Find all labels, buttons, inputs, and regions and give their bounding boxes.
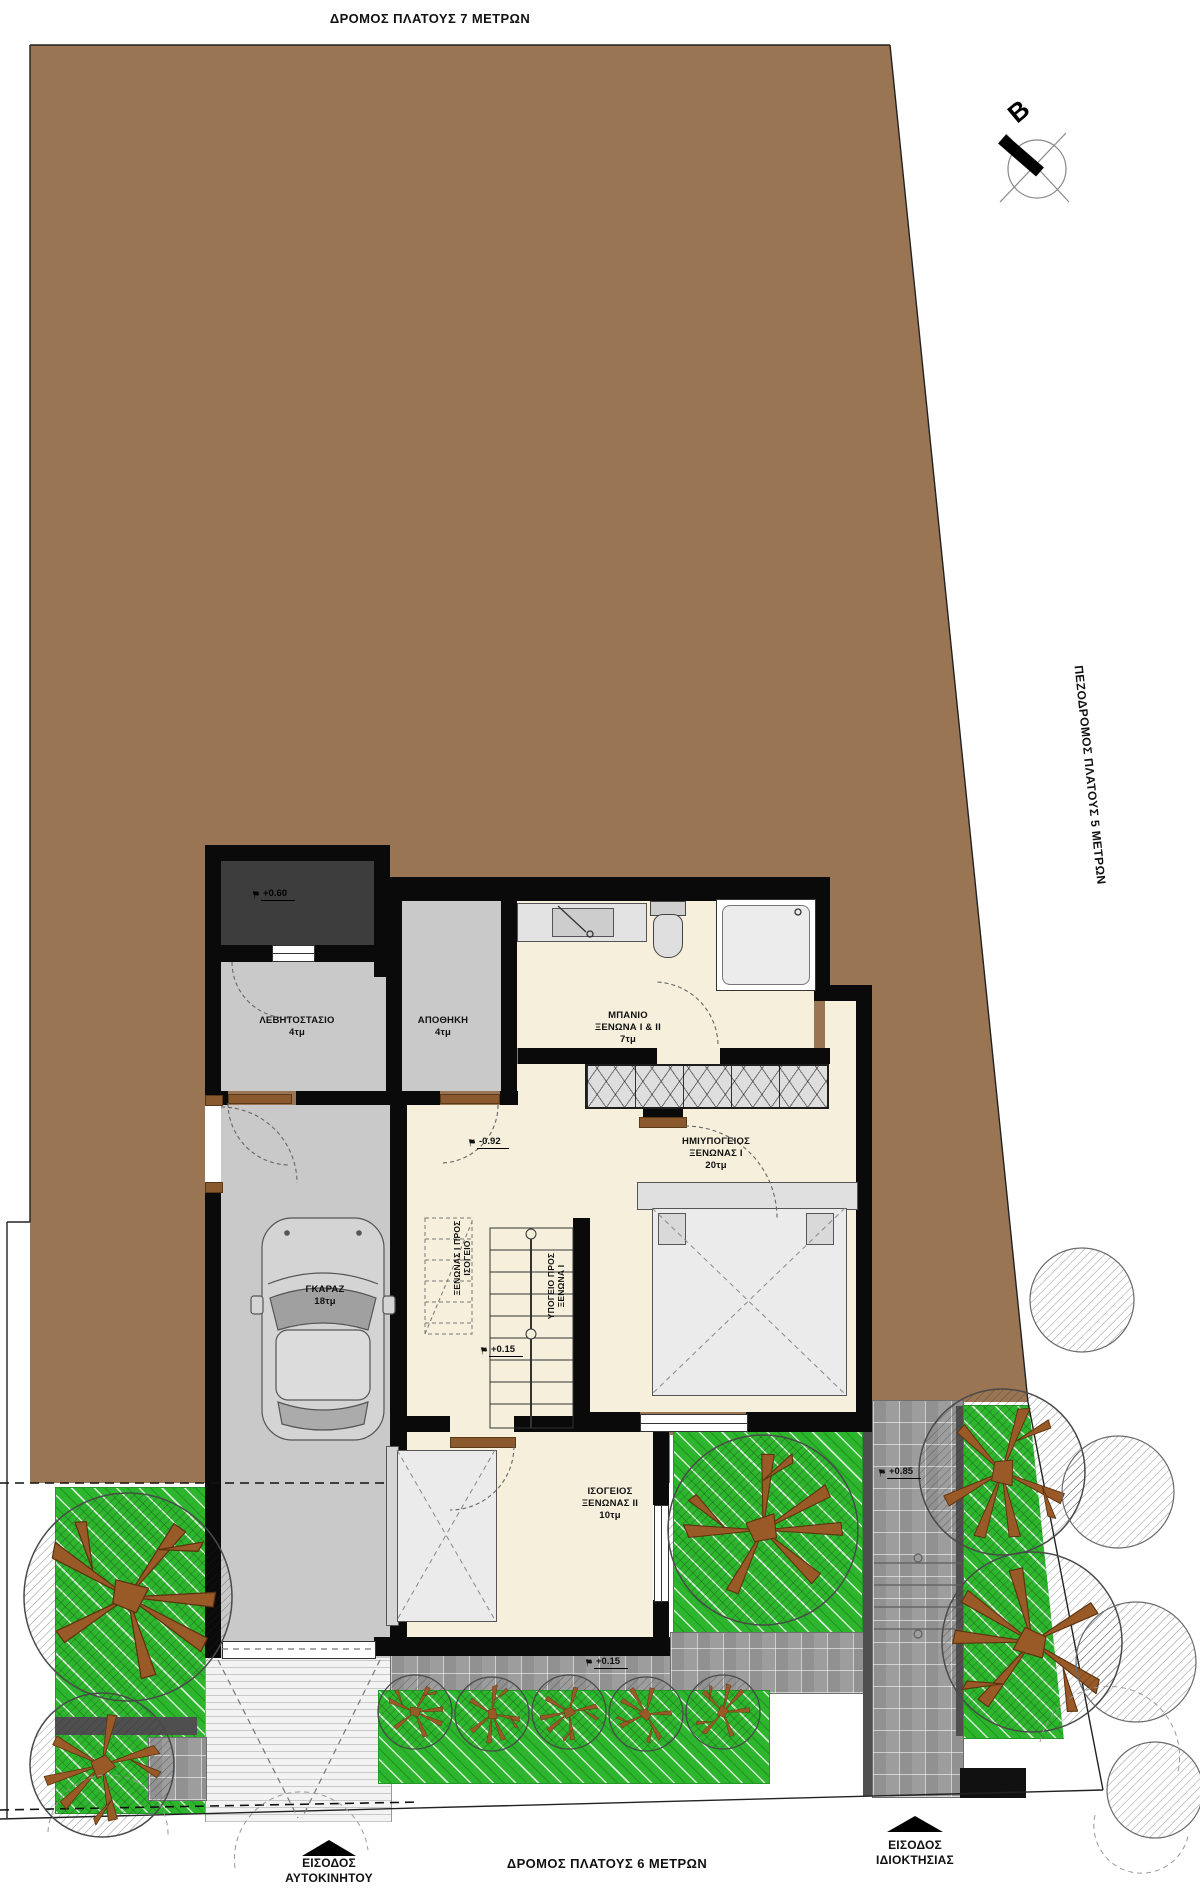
left-garden-wall bbox=[55, 1717, 197, 1735]
elevation-value: +0.15 bbox=[489, 1344, 523, 1357]
wall bbox=[386, 901, 402, 1091]
elevation-porch: ⚑ +0.60 bbox=[252, 888, 295, 901]
wall bbox=[374, 1637, 670, 1656]
closet-band bbox=[585, 1064, 829, 1109]
wall bbox=[500, 1091, 518, 1105]
driveway bbox=[205, 1658, 392, 1822]
room-label-bath: ΜΠΑΝΙΟ ΞΕΝΩΝΑ I & II 7τμ bbox=[595, 1010, 661, 1046]
walkway-paving bbox=[872, 1400, 964, 1798]
door-leaf bbox=[450, 1437, 516, 1448]
wall bbox=[514, 1416, 575, 1432]
room-name: ΜΠΑΝΙΟ bbox=[595, 1010, 661, 1022]
room-name: ΞΕΝΩΝΑ I & II bbox=[595, 1022, 661, 1034]
wall bbox=[221, 945, 272, 962]
stair-text: ΙΣΟΓΕΙΟ bbox=[462, 1221, 472, 1296]
room-label-storage: ΑΠΟΘΗΚΗ 4τμ bbox=[418, 1015, 468, 1039]
wall bbox=[205, 845, 390, 861]
wall bbox=[501, 901, 517, 1091]
entrance-text: ΕΙΣΟΔΟΣ bbox=[285, 1856, 373, 1871]
wall bbox=[205, 845, 221, 1658]
right-garden bbox=[963, 1405, 1083, 1739]
stair-label-up: ΞΕΝΩΝΑΣ I ΠΡΟΣ ΙΣΟΓΕΙΟ bbox=[452, 1221, 472, 1296]
bath-sink bbox=[552, 908, 614, 937]
room-name: ΑΠΟΘΗΚΗ bbox=[418, 1015, 468, 1027]
bed-headboard bbox=[637, 1182, 858, 1210]
west-door-opening bbox=[205, 1103, 221, 1183]
stairwell-floor bbox=[407, 1218, 573, 1432]
stair-label-down: ΥΠΟΓΕΙΟ ΠΡΟΣ ΞΕΝΩΝΑ I bbox=[546, 1253, 566, 1319]
wall bbox=[518, 1048, 657, 1064]
storage-room-floor bbox=[402, 901, 501, 1091]
room-label-garage: ΓΚΑΡΑΖ 18τμ bbox=[306, 1284, 345, 1308]
entrance-text: ΕΙΣΟΔΟΣ bbox=[876, 1838, 954, 1853]
property-entrance-label: ΕΙΣΟΔΟΣ ΙΔΙΟΚΤΗΣΙΑΣ bbox=[876, 1838, 954, 1868]
road-label-right: ΠΕΖΟΔΡΟΜΟΣ ΠΛΑΤΟΥΣ 5 ΜΕΤΡΩΝ bbox=[1073, 665, 1108, 885]
north-arrow-icon: B bbox=[1000, 94, 1069, 202]
left-stone-patch bbox=[148, 1737, 207, 1801]
property-entrance-icon bbox=[887, 1816, 943, 1832]
stair-text: ΞΕΝΩΝΑΣ I ΠΡΟΣ bbox=[452, 1221, 462, 1296]
guest2-window bbox=[654, 1505, 669, 1602]
room-name: ΛΕΒΗΤΟΣΤΑΣΙΟ bbox=[259, 1015, 334, 1027]
walkway-edge-left bbox=[863, 1400, 872, 1796]
shower-tray bbox=[722, 905, 810, 985]
wall bbox=[814, 877, 830, 1001]
margin-canopies bbox=[1030, 1248, 1200, 1838]
room-label-guest1: ΗΜΙΥΠΟΓΕΙΟΣ ΞΕΝΩΝΑΣ I 20τμ bbox=[682, 1136, 750, 1172]
room-label-boiler: ΛΕΒΗΤΟΣΤΑΣΙΟ 4τμ bbox=[259, 1015, 334, 1039]
room-area: 7τμ bbox=[595, 1034, 661, 1046]
elevation-value: -0.92 bbox=[477, 1136, 509, 1149]
porch-floor bbox=[221, 861, 374, 945]
wall bbox=[313, 945, 374, 962]
door-jamb bbox=[205, 1095, 223, 1106]
pillow bbox=[658, 1213, 686, 1245]
elevation-hall: ⚑ -0.92 bbox=[468, 1136, 509, 1149]
walkway-edge-right bbox=[956, 1406, 964, 1736]
door-leaf bbox=[228, 1094, 292, 1104]
hedge-lawn bbox=[378, 1690, 770, 1784]
elevation-value: +0.60 bbox=[261, 888, 295, 901]
garage-floor bbox=[221, 1105, 390, 1658]
road-label-bottom: ΔΡΟΜΟΣ ΠΛΑΤΟΥΣ 6 ΜΕΤΡΩΝ bbox=[507, 1858, 707, 1870]
room-label-guest2: ΙΣΟΓΕΙΟΣ ΞΕΝΩΝΑΣ II 10τμ bbox=[582, 1486, 638, 1522]
pillow bbox=[806, 1213, 834, 1245]
terrace-paving-right bbox=[670, 1632, 874, 1694]
room-name: ΞΕΝΩΝΑΣ I bbox=[682, 1148, 750, 1160]
stair-text: ΥΠΟΓΕΙΟ ΠΡΟΣ bbox=[546, 1253, 556, 1319]
wall bbox=[296, 1091, 440, 1105]
room-area: 10τμ bbox=[582, 1510, 638, 1522]
room-name: ΞΕΝΩΝΑΣ II bbox=[582, 1498, 638, 1510]
wall bbox=[856, 985, 872, 1430]
room-name: ΙΣΟΓΕΙΟΣ bbox=[582, 1486, 638, 1498]
wall bbox=[573, 1218, 590, 1416]
stair-text: ΞΕΝΩΝΑ I bbox=[556, 1253, 566, 1319]
door-leaf bbox=[639, 1117, 687, 1128]
road-label-top: ΔΡΟΜΟΣ ΠΛΑΤΟΥΣ 7 ΜΕΤΡΩΝ bbox=[330, 13, 530, 25]
elevation-walkway: ⚑ +0.85 bbox=[878, 1466, 921, 1479]
room-name: ΓΚΑΡΑΖ bbox=[306, 1284, 345, 1296]
elevation-value: +0.85 bbox=[887, 1466, 921, 1479]
site-plan-canvas: B ΔΡΟΜΟΣ ΠΛΑΤΟΥΣ 7 ΜΕΤΡΩΝ ΠΕΖΟΔΡΟΜΟΣ ΠΛΑ… bbox=[0, 0, 1200, 1900]
closet-corridor-floor bbox=[517, 1064, 585, 1105]
entrance-text: ΙΔΙΟΚΤΗΣΙΑΣ bbox=[876, 1853, 954, 1868]
room-name: ΗΜΙΥΠΟΓΕΙΟΣ bbox=[682, 1136, 750, 1148]
room-area: 4τμ bbox=[259, 1027, 334, 1039]
wall bbox=[720, 1048, 830, 1064]
elevation-stair-landing: ⚑ +0.15 bbox=[480, 1344, 523, 1357]
courtyard-lawn bbox=[673, 1430, 863, 1635]
door-jamb bbox=[205, 1182, 223, 1193]
wall bbox=[653, 1600, 669, 1639]
bath-corridor-floor bbox=[657, 1048, 720, 1064]
wall bbox=[746, 1412, 872, 1432]
room-area: 18τμ bbox=[306, 1296, 345, 1308]
elevation-terrace: ⚑ +0.15 bbox=[585, 1656, 628, 1669]
room-area: 4τμ bbox=[418, 1027, 468, 1039]
car-entrance-label: ΕΙΣΟΔΟΣ ΑΥΤΟΚΙΝΗΤΟΥ bbox=[285, 1856, 373, 1886]
guest1-window bbox=[640, 1414, 748, 1432]
wall bbox=[653, 1432, 669, 1505]
garage-door bbox=[222, 1641, 376, 1659]
room-area: 20τμ bbox=[682, 1160, 750, 1172]
wall bbox=[407, 1416, 450, 1432]
north-label: B bbox=[1002, 94, 1036, 129]
elevation-value: +0.15 bbox=[594, 1656, 628, 1669]
bed bbox=[397, 1450, 497, 1622]
toilet-bowl bbox=[653, 914, 683, 958]
entrance-text: ΑΥΤΟΚΙΝΗΤΟΥ bbox=[285, 1871, 373, 1886]
car-entrance-icon bbox=[302, 1840, 356, 1856]
door-leaf bbox=[440, 1094, 500, 1104]
porch-window bbox=[272, 945, 315, 962]
wall bbox=[390, 877, 830, 901]
walkway-shadow bbox=[960, 1768, 1026, 1798]
